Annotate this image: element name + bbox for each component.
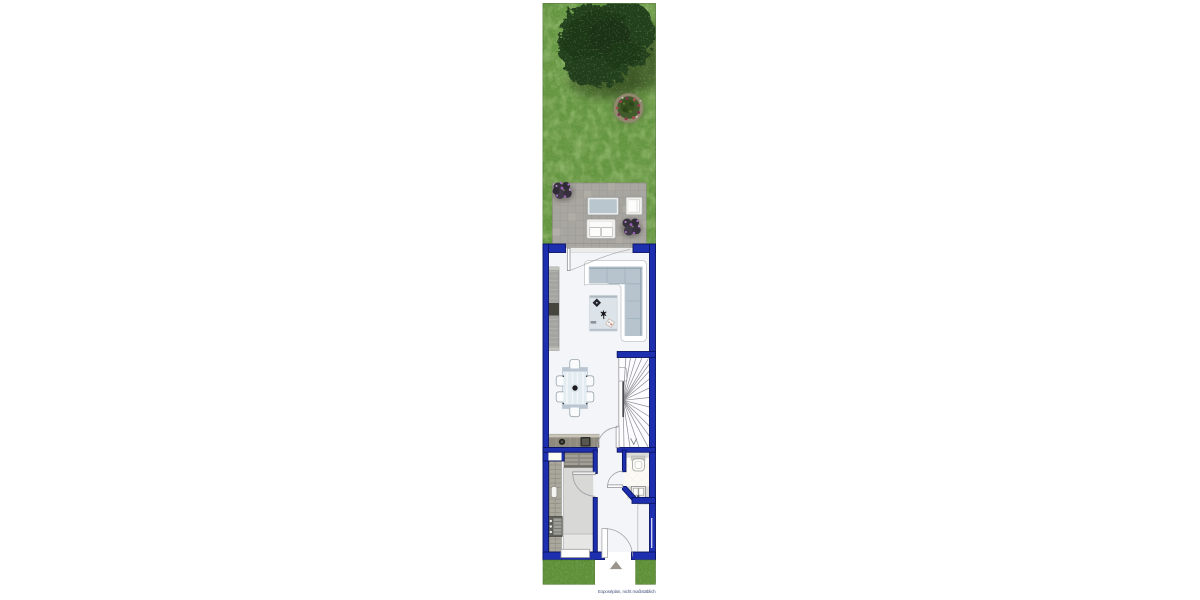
svg-text:Exposéplan, nicht maßstäblich: Exposéplan, nicht maßstäblich [598, 589, 656, 594]
